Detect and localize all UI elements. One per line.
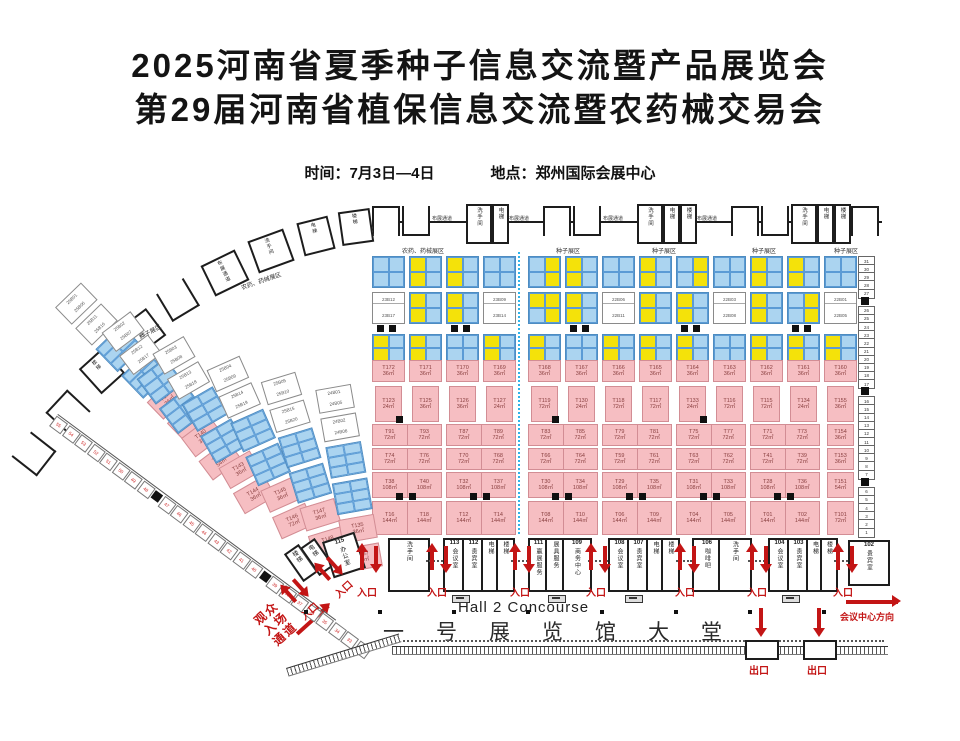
- entrance-part: [326, 557, 342, 574]
- booth-label: T16336㎡: [713, 360, 746, 382]
- entrance-arrow-down: [692, 546, 696, 570]
- booth-block: [289, 463, 333, 504]
- entrance-arrow-down: [764, 546, 768, 570]
- wall-room: 洗手间: [466, 204, 492, 244]
- exit-arrow: [817, 608, 821, 634]
- booth: T15436㎡: [827, 424, 854, 446]
- wall-room: 洗手间: [247, 229, 294, 274]
- zone-divider: [518, 252, 520, 534]
- exit-door: [803, 640, 837, 660]
- booth-pair: T08144㎡T10144㎡: [528, 501, 598, 535]
- booth-block: [483, 256, 516, 288]
- pillar: [804, 325, 811, 332]
- booth-block: [278, 427, 322, 468]
- facility-room: 洗手间: [388, 538, 430, 592]
- booth: T12724㎡: [486, 386, 513, 422]
- booth-pair: T04144㎡T05144㎡: [676, 501, 746, 535]
- setup-passage-label: 布展通道: [432, 215, 462, 222]
- booth-pair: T12144㎡T14144㎡: [446, 501, 516, 535]
- entrance-label: 入口: [833, 584, 853, 599]
- entrance-part: [292, 579, 308, 596]
- booth-label: T16736㎡: [565, 360, 598, 382]
- booth-block: [750, 334, 783, 362]
- pillar: [792, 325, 799, 332]
- booth-block: [676, 334, 709, 362]
- entrance-arrow-down: [850, 546, 854, 570]
- booth-block: [409, 334, 442, 362]
- wall-room: 洗手间: [637, 204, 663, 244]
- booth-block: [409, 256, 442, 288]
- pillar: [861, 297, 869, 305]
- pillar: [681, 325, 688, 332]
- conference-center-direction-label: 会议中心方向: [840, 610, 894, 623]
- booth-label: T17236㎡: [372, 360, 405, 382]
- entrance-label: 入口: [675, 584, 695, 599]
- booth-block: [787, 334, 820, 362]
- booth: T15154㎡: [827, 472, 854, 498]
- booth-block-outline: 25B0525B10: [261, 372, 302, 405]
- booth-block: [565, 334, 598, 362]
- booth: T12536㎡: [412, 386, 439, 422]
- booth: T15336㎡: [827, 448, 854, 470]
- booth-block: [446, 334, 479, 362]
- floor-plan: Hall 2 Concourse 一号展览馆大堂 会议中心方向 观众 入场 通道…: [0, 0, 960, 741]
- wall-room: [402, 206, 430, 236]
- entrance-arrow-down: [374, 546, 378, 570]
- entrance-arrow-up: [360, 546, 364, 570]
- booth-pair: T28108㎡T36108㎡: [750, 472, 820, 498]
- wall-room: [851, 206, 879, 236]
- wall-room: 楼梯: [834, 204, 851, 244]
- booth-pair: T32108㎡T37108㎡: [446, 472, 516, 498]
- pillar-dot: [526, 610, 530, 614]
- pillar: [861, 478, 869, 486]
- pillar: [700, 493, 707, 500]
- setup-passage-label: 布展通道: [509, 215, 539, 222]
- booth-block: [325, 441, 366, 479]
- booth-pair: T29108㎡T35108㎡: [602, 472, 672, 498]
- section-label: 种子展区: [834, 246, 858, 255]
- entrance-part: [315, 564, 331, 581]
- booth-block: [750, 256, 783, 288]
- entrance-label: 入口: [427, 584, 447, 599]
- pillar: [565, 493, 572, 500]
- wall-room: [543, 206, 571, 236]
- booth-block: [528, 292, 561, 324]
- booth-block-outline: 22B0322B08: [713, 292, 746, 324]
- wall-room: 电梯: [492, 204, 509, 244]
- booth-label: T16636㎡: [602, 360, 635, 382]
- wall-room: [761, 206, 789, 236]
- booth-pair: T6372㎡T6272㎡: [676, 448, 746, 470]
- booth-pair: T4172㎡T3972㎡: [750, 448, 820, 470]
- entrance-arrow-up: [513, 546, 517, 570]
- booth-block-outline: 25B1525B20: [269, 399, 310, 432]
- pillar-dot: [600, 610, 604, 614]
- booth-block-outline: 23B0923B14: [483, 292, 516, 324]
- booth-pair: T9172㎡T9372㎡: [372, 424, 442, 446]
- pillar-dot: [452, 610, 456, 614]
- pillar-dot: [378, 610, 382, 614]
- facility-room: 102贵宾室: [848, 540, 890, 586]
- section-label: 种子展区: [752, 246, 776, 255]
- entrance-label: 入口: [357, 584, 377, 599]
- wall-room: [372, 206, 400, 236]
- booth-block: [713, 334, 746, 362]
- booth: T11772㎡: [642, 386, 669, 422]
- booth-pair: T7472㎡T7672㎡: [372, 448, 442, 470]
- booth: T11872㎡: [605, 386, 632, 422]
- pillar: [377, 325, 384, 332]
- booth-block-outline: 22B0122B05: [824, 292, 857, 324]
- pillar-dot: [748, 610, 752, 614]
- pillar: [626, 493, 633, 500]
- entrance-arrow-up: [589, 546, 593, 570]
- pillar: [861, 387, 869, 395]
- pillar-dot: [822, 610, 826, 614]
- exit-door: [745, 640, 779, 660]
- booth-pair: T30108㎡T34108㎡: [528, 472, 598, 498]
- booth-label: T16136㎡: [787, 360, 820, 382]
- door-connector: [426, 560, 443, 562]
- wall-room: [156, 278, 200, 322]
- booth-block: [372, 334, 405, 362]
- booth: T13024㎡: [568, 386, 595, 422]
- booth-block: [639, 292, 672, 324]
- booth-pair: T7572㎡T7772㎡: [676, 424, 746, 446]
- entrance-label: 入口: [586, 584, 606, 599]
- booth-block: [565, 292, 598, 324]
- booth-block: [483, 334, 516, 362]
- booth-block-outline: 24B0124B05: [315, 384, 355, 414]
- pillar: [451, 325, 458, 332]
- booth-pair: T38108㎡T40108㎡: [372, 472, 442, 498]
- booth-pair: T31108㎡T33108㎡: [676, 472, 746, 498]
- booth-pair: T7072㎡T6872㎡: [446, 448, 516, 470]
- bench-icon: [782, 595, 800, 603]
- wall-room: 楼梯: [338, 208, 374, 246]
- section-label: 种子展区: [652, 246, 676, 255]
- booth-label: T16936㎡: [483, 360, 516, 382]
- entrance-arrow-up: [836, 546, 840, 570]
- section-label: 农药、药械展区: [402, 246, 444, 255]
- booth-block-outline: 23B1223B17: [372, 292, 405, 324]
- entrance-arrow-down: [444, 546, 448, 570]
- pillar: [700, 416, 707, 423]
- pillar: [570, 325, 577, 332]
- direction-arrow: [846, 600, 898, 604]
- booth: T12636㎡: [449, 386, 476, 422]
- setup-passage-label: 布展通道: [697, 215, 727, 222]
- pillar: [483, 493, 490, 500]
- booth-block: [750, 292, 783, 324]
- exit-label: 出口: [749, 662, 769, 677]
- pillar: [396, 416, 403, 423]
- booth-block: [676, 292, 709, 324]
- wall-room: 电梯: [663, 204, 680, 244]
- booth-label: T16436㎡: [676, 360, 709, 382]
- entrance-label: 入口: [747, 584, 767, 599]
- entrance-arrow-up: [430, 546, 434, 570]
- bench-icon: [625, 595, 643, 603]
- booth-block: [332, 477, 373, 515]
- pillar: [787, 493, 794, 500]
- wall-booth-number: 1: [858, 528, 875, 538]
- booth-block: [409, 292, 442, 324]
- pillar: [552, 493, 559, 500]
- booth-block: [787, 256, 820, 288]
- setup-passage-label: 布展通道: [603, 215, 633, 222]
- booth-label: T16036㎡: [824, 360, 857, 382]
- entrance-arrow-up: [678, 546, 682, 570]
- wall-room: 楼梯: [680, 204, 697, 244]
- booth-pair: T06144㎡T09144㎡: [602, 501, 672, 535]
- booth-block: [602, 256, 635, 288]
- entrance-arrow-down: [603, 546, 607, 570]
- pillar: [639, 493, 646, 500]
- wall-room: [573, 206, 601, 236]
- booth-block: [528, 256, 561, 288]
- pillar: [470, 493, 477, 500]
- booth-block: [602, 334, 635, 362]
- floor-plan-poster: 2025河南省夏季种子信息交流暨产品展览会 第29届河南省植保信息交流暨农药械交…: [0, 0, 960, 741]
- booth-block: [676, 256, 709, 288]
- booth-block: [824, 334, 857, 362]
- booth-label: T16536㎡: [639, 360, 672, 382]
- booth-block: [446, 256, 479, 288]
- pillar: [389, 325, 396, 332]
- booth-label: T17136㎡: [409, 360, 442, 382]
- hall-2-concourse-label: Hall 2 Concourse: [458, 599, 589, 616]
- booth-block: [528, 334, 561, 362]
- booth: T10172㎡: [827, 501, 854, 535]
- booth-label: T17036㎡: [446, 360, 479, 382]
- entrance-label: 入口: [510, 584, 530, 599]
- wall-room: [731, 206, 759, 236]
- booth-pair: T5972㎡T6172㎡: [602, 448, 672, 470]
- booth-pair: T16144㎡T18144㎡: [372, 501, 442, 535]
- wall-room: [12, 432, 57, 477]
- entrance-part: 入口: [331, 576, 356, 601]
- booth-pair: T7172㎡T7372㎡: [750, 424, 820, 446]
- wall-room: 洗手间: [791, 204, 817, 244]
- pillar-dot: [674, 610, 678, 614]
- pillar: [396, 493, 403, 500]
- booth-block: [639, 334, 672, 362]
- wall-room: 电梯: [817, 204, 834, 244]
- booth-pair: T01144㎡T02144㎡: [750, 501, 820, 535]
- bench-icon: [452, 595, 470, 603]
- booth-block: [713, 256, 746, 288]
- booth-block: [446, 292, 479, 324]
- pillar: [409, 493, 416, 500]
- wall-room: 电梯: [296, 216, 335, 257]
- booth-label: T16236㎡: [750, 360, 783, 382]
- pillar: [552, 416, 559, 423]
- booth-pair: T7972㎡T8172㎡: [602, 424, 672, 446]
- booth-block-outline: 24B0224B06: [320, 412, 360, 442]
- booth-pair: T6672㎡T6472㎡: [528, 448, 598, 470]
- booth-block: [372, 256, 405, 288]
- booth-pair: T8372㎡T8572㎡: [528, 424, 598, 446]
- exit-label: 出口: [807, 662, 827, 677]
- booth: T13424㎡: [790, 386, 817, 422]
- exit-arrow: [759, 608, 763, 634]
- pillar: [774, 493, 781, 500]
- booth: T11672㎡: [716, 386, 743, 422]
- booth-block-outline: 22B0622B11: [602, 292, 635, 324]
- booth: T15536㎡: [827, 386, 854, 422]
- pillar-dot: [304, 610, 308, 614]
- pillar: [713, 493, 720, 500]
- entrance-arrow-down: [527, 546, 531, 570]
- booth-block: [565, 256, 598, 288]
- pillar: [463, 325, 470, 332]
- booth-label: T16836㎡: [528, 360, 561, 382]
- booth-block: [639, 256, 672, 288]
- booth-block: [787, 292, 820, 324]
- booth: T11572㎡: [753, 386, 780, 422]
- pillar: [582, 325, 589, 332]
- entrance-arrow-up: [750, 546, 754, 570]
- section-label: 种子展区: [556, 246, 580, 255]
- bench-icon: [548, 595, 566, 603]
- pillar: [693, 325, 700, 332]
- booth-block: [824, 256, 857, 288]
- booth-pair: T8772㎡T8972㎡: [446, 424, 516, 446]
